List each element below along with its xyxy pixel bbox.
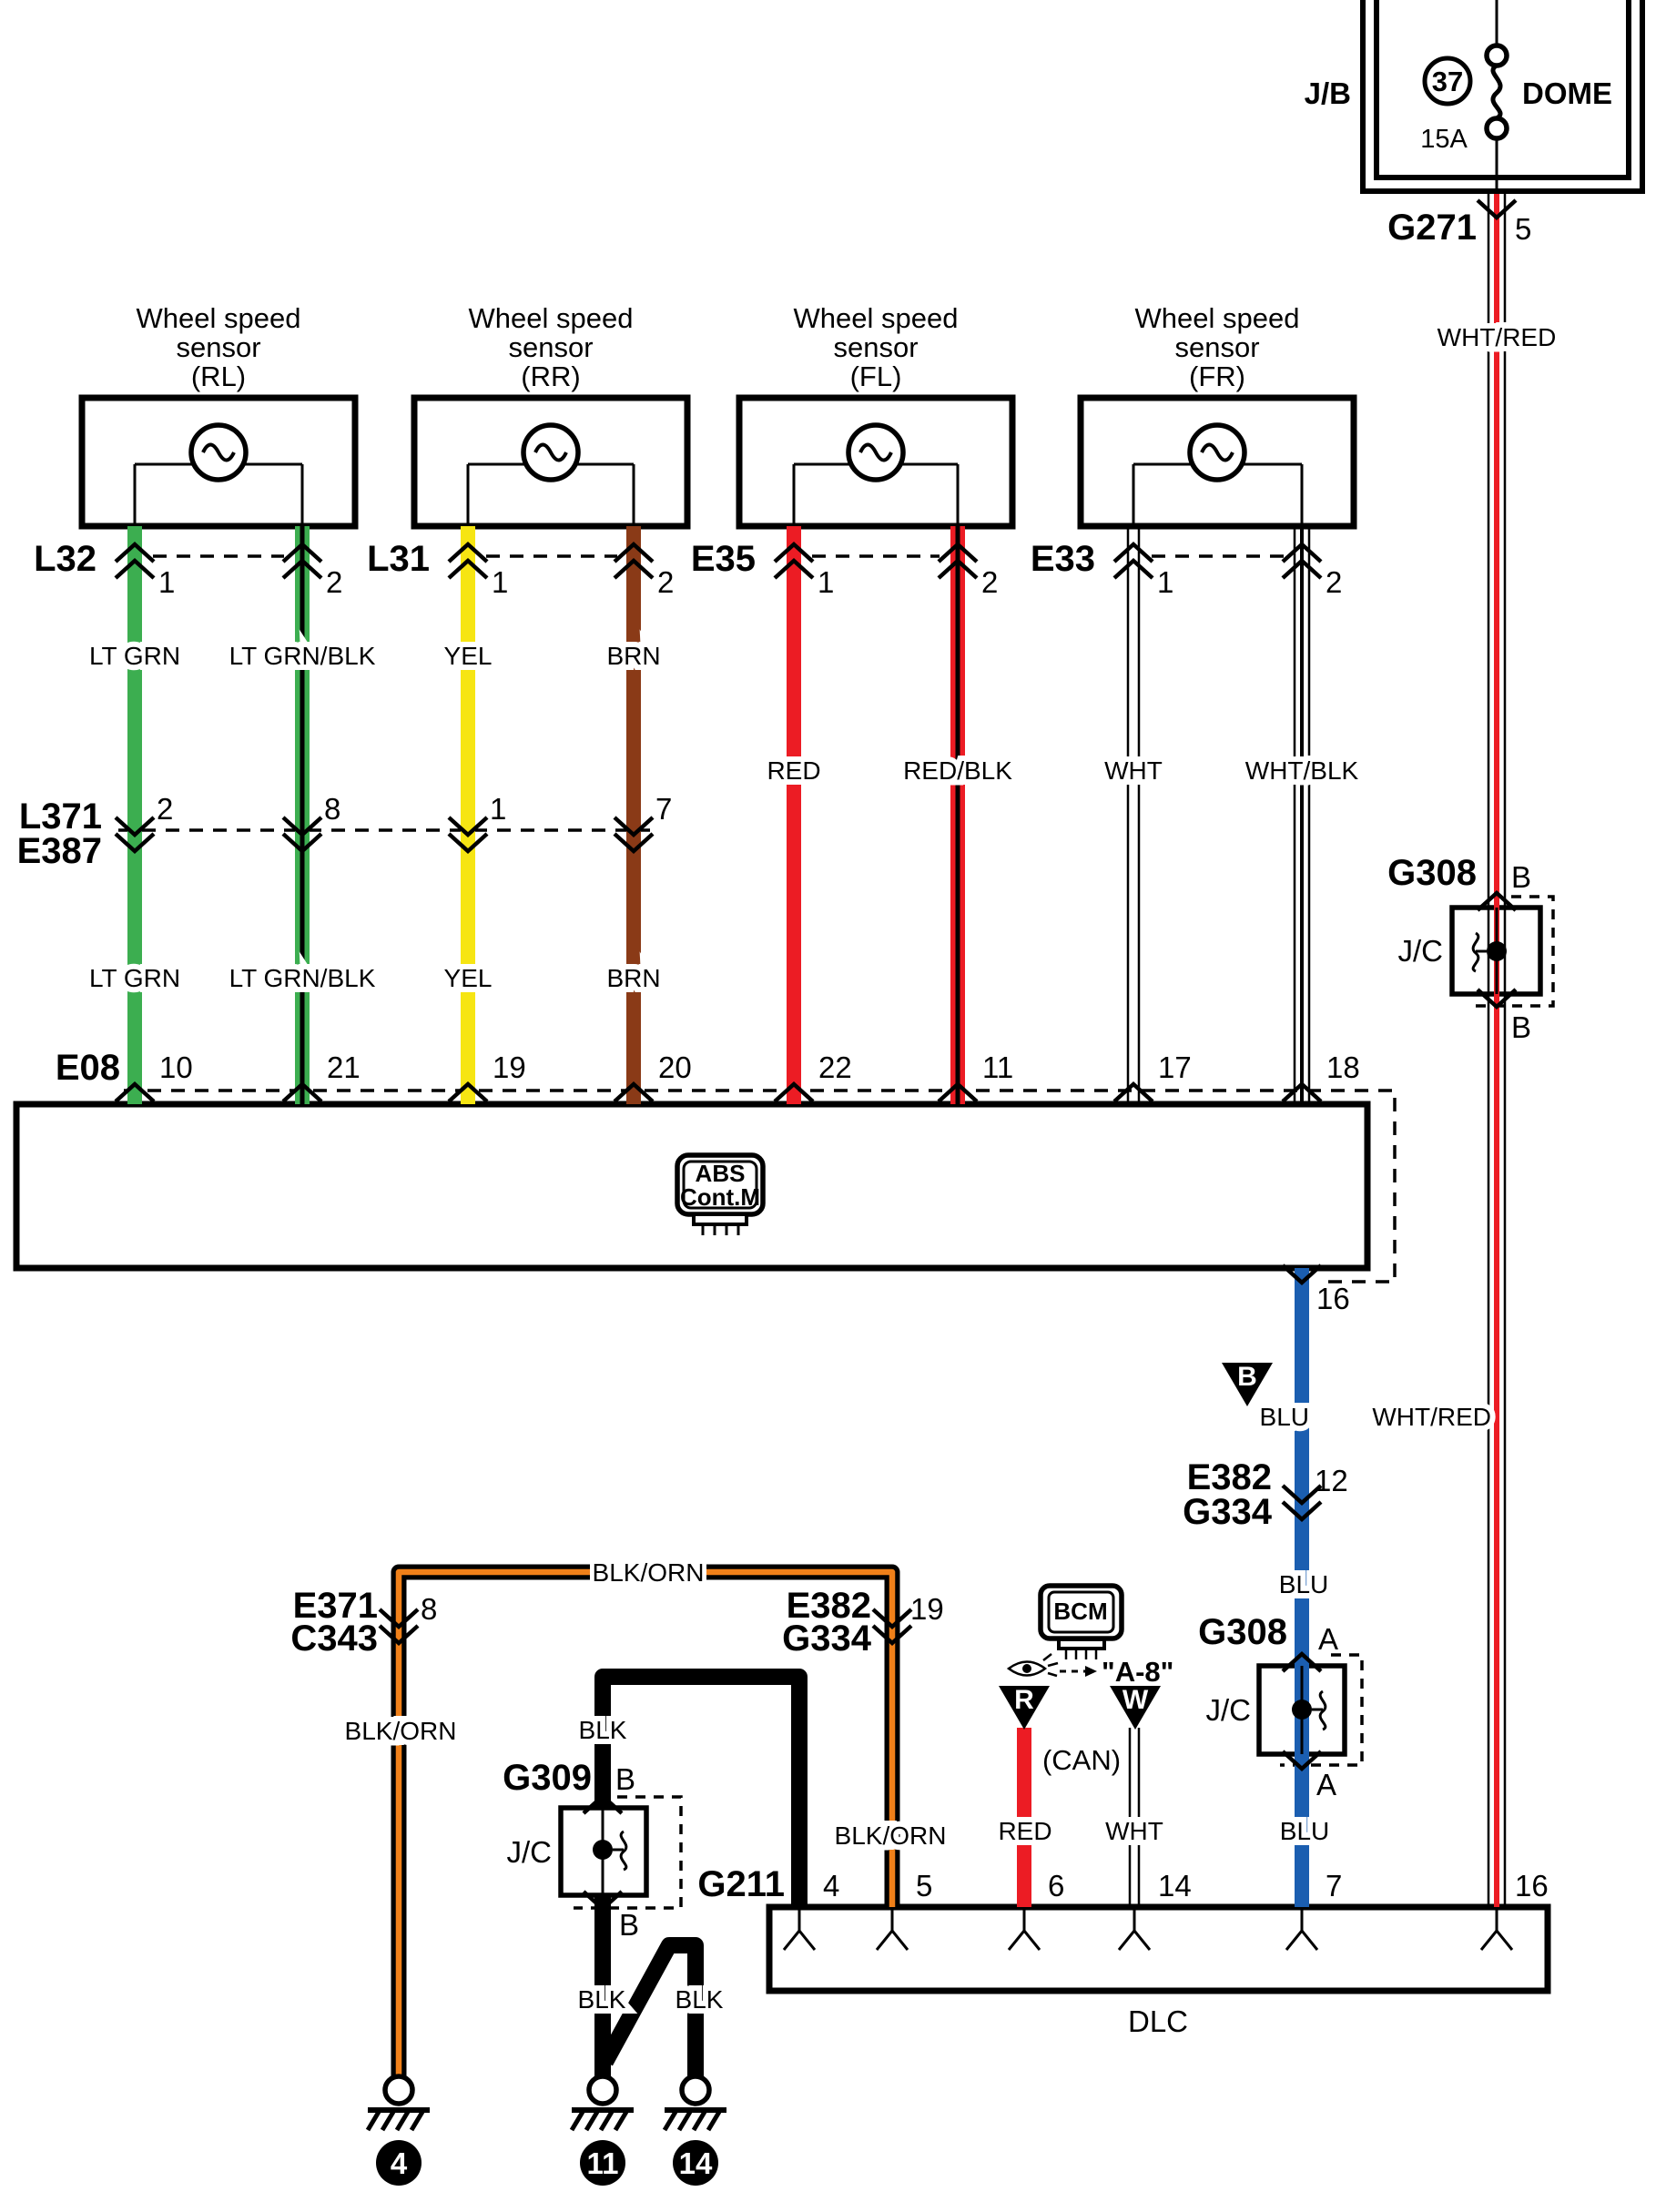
svg-text:(FR): (FR): [1189, 360, 1245, 392]
svg-text:YEL: YEL: [444, 964, 493, 992]
svg-text:(RL): (RL): [191, 360, 246, 392]
svg-text:J/C: J/C: [1206, 1693, 1252, 1727]
abs-wiring-diagram: J/B 37 15A DOME G271 5 WHT/RED Wheel spe…: [0, 0, 1666, 2212]
wire-label-blk-u: BLK: [579, 1716, 627, 1744]
ground-icon: [665, 2076, 726, 2130]
triangle-w-label: W: [1123, 1685, 1149, 1715]
svg-text:5: 5: [916, 1869, 932, 1903]
fuse-icon: [1487, 0, 1507, 194]
connector-e35: E35: [691, 539, 756, 579]
svg-text:A: A: [1318, 1622, 1338, 1656]
svg-text:1: 1: [492, 565, 508, 599]
wheel-speed-sensor-fl-box: [739, 398, 1012, 526]
fuse-name: DOME: [1522, 76, 1612, 110]
svg-text:7: 7: [1326, 1869, 1342, 1903]
svg-text:8: 8: [324, 792, 340, 826]
svg-text:B: B: [1511, 860, 1531, 894]
svg-text:2: 2: [657, 565, 674, 599]
eye-icon: [1009, 1654, 1058, 1676]
svg-text:LT GRN/BLK: LT GRN/BLK: [229, 642, 376, 670]
svg-text:WHT: WHT: [1104, 756, 1163, 785]
wire-label-wht: WHT: [1105, 1817, 1163, 1845]
wheel-speed-sensor-fr-box: [1081, 398, 1354, 526]
triangle-b-label: B: [1237, 1362, 1257, 1392]
dlc-label: DLC: [1128, 2004, 1188, 2038]
sensor-connector-labels: L32 1 2 L31 1 2 E35 1 2 E33 1 2: [34, 539, 1342, 599]
ground-number-14: 14: [679, 2146, 713, 2180]
svg-text:18: 18: [1326, 1050, 1360, 1084]
ground-icon: [368, 2076, 430, 2130]
svg-text:Wheel speed: Wheel speed: [794, 302, 959, 334]
svg-text:16: 16: [1515, 1869, 1549, 1903]
svg-text:2: 2: [326, 565, 342, 599]
svg-text:sensor: sensor: [176, 331, 260, 363]
wire-label-wht-red-2: WHT/RED: [1372, 1403, 1491, 1431]
wire-label-blk-orn-right: BLK/ORN: [835, 1821, 947, 1850]
wire-label-blu-2: BLU: [1279, 1570, 1328, 1598]
svg-text:(FL): (FL): [850, 360, 902, 392]
wheel-speed-sensor-rl-box: [82, 398, 355, 526]
svg-text:21: 21: [327, 1050, 361, 1084]
wire-label-blk-orn-left: BLK/ORN: [345, 1717, 457, 1745]
ground-icon: [572, 2076, 634, 2130]
bcm-label: BCM: [1053, 1598, 1107, 1625]
can-label: (CAN): [1042, 1744, 1121, 1776]
svg-text:7: 7: [655, 792, 672, 826]
triangle-r-label: R: [1014, 1685, 1034, 1715]
connector-e382-g334-blkorn: E382 G334 19: [782, 1586, 944, 1659]
svg-text:B: B: [1511, 1010, 1531, 1044]
svg-text:BRN: BRN: [606, 642, 660, 670]
reference-arrow-icon: [1060, 1666, 1097, 1677]
wire-label-blk-14: BLK: [676, 1985, 724, 2014]
svg-text:sensor: sensor: [833, 331, 918, 363]
wire-color-labels: LT GRN LT GRN/BLK YEL BRN RED RED/BLK WH…: [89, 642, 1359, 992]
connector-l31: L31: [367, 539, 430, 579]
svg-text:Wheel speed: Wheel speed: [137, 302, 301, 334]
svg-text:2: 2: [981, 565, 998, 599]
svg-text:10: 10: [159, 1050, 193, 1084]
svg-text:G211: G211: [697, 1864, 785, 1904]
svg-text:A: A: [1316, 1768, 1336, 1801]
svg-text:LT GRN: LT GRN: [89, 964, 180, 992]
fuse-number: 37: [1432, 66, 1463, 97]
ground-number-11: 11: [587, 2146, 619, 2180]
svg-text:C343: C343: [290, 1618, 378, 1659]
connector-l32: L32: [34, 539, 97, 579]
wire-label-red: RED: [998, 1817, 1051, 1845]
svg-text:(RR): (RR): [521, 360, 580, 392]
svg-text:19: 19: [910, 1592, 944, 1626]
abs-label-2: Cont.M: [680, 1183, 760, 1211]
svg-text:G308: G308: [1387, 853, 1477, 893]
svg-text:G334: G334: [1183, 1492, 1273, 1532]
wire-label-blu-1: BLU: [1260, 1403, 1309, 1431]
svg-text:sensor: sensor: [508, 331, 593, 363]
svg-text:G308: G308: [1198, 1612, 1287, 1652]
svg-text:E08: E08: [56, 1048, 120, 1088]
svg-text:E387: E387: [17, 831, 102, 871]
dlc-box: [769, 1907, 1548, 1991]
connector-e382-g334-blu: E382 G334 12: [1183, 1457, 1348, 1532]
bcm-reference: "A-8": [1102, 1656, 1173, 1688]
svg-text:19: 19: [493, 1050, 526, 1084]
wheel-speed-sensor-rr-box: [414, 398, 687, 526]
wire-label-wht-red: WHT/RED: [1437, 323, 1557, 351]
svg-text:J/C: J/C: [1398, 934, 1444, 968]
svg-text:2: 2: [157, 792, 173, 826]
svg-text:RED: RED: [767, 756, 820, 785]
svg-text:RED/BLK: RED/BLK: [903, 756, 1012, 785]
svg-text:Wheel speed: Wheel speed: [469, 302, 634, 334]
svg-text:11: 11: [982, 1050, 1013, 1084]
svg-text:BRN: BRN: [606, 964, 660, 992]
svg-text:1: 1: [1157, 565, 1173, 599]
svg-text:1: 1: [818, 565, 834, 599]
svg-text:17: 17: [1158, 1050, 1192, 1084]
wire-label-blk-orn-top: BLK/ORN: [593, 1558, 705, 1587]
wire-wht: [1128, 526, 1139, 1104]
svg-text:12: 12: [1315, 1464, 1348, 1497]
svg-text:LT GRN/BLK: LT GRN/BLK: [229, 964, 376, 992]
wiring-diagram-page: J/B 37 15A DOME G271 5 WHT/RED Wheel spe…: [0, 0, 1666, 2212]
svg-text:LT GRN: LT GRN: [89, 642, 180, 670]
svg-text:14: 14: [1158, 1869, 1192, 1903]
connector-g271: G271: [1387, 208, 1477, 248]
wire-label-blk-11: BLK: [578, 1985, 626, 2014]
svg-text:G309: G309: [503, 1758, 592, 1798]
svg-text:8: 8: [421, 1592, 437, 1626]
connector-e33: E33: [1031, 539, 1095, 579]
svg-text:sensor: sensor: [1174, 331, 1259, 363]
svg-text:Wheel speed: Wheel speed: [1135, 302, 1300, 334]
svg-text:J/C: J/C: [507, 1835, 553, 1869]
svg-text:G334: G334: [782, 1618, 872, 1659]
svg-text:B: B: [619, 1908, 639, 1942]
svg-text:WHT/BLK: WHT/BLK: [1245, 756, 1359, 785]
jb-label: J/B: [1305, 76, 1351, 110]
svg-text:22: 22: [818, 1050, 852, 1084]
wire-label-blu-3: BLU: [1280, 1817, 1329, 1845]
svg-text:20: 20: [658, 1050, 692, 1084]
svg-text:4: 4: [823, 1869, 839, 1903]
sensor-titles: Wheel speed sensor (RL) Wheel speed sens…: [137, 302, 1300, 392]
svg-text:1: 1: [490, 792, 506, 826]
connector-e371-c343: E371 C343 8: [290, 1586, 437, 1659]
e08-pin16: 16: [1316, 1282, 1350, 1315]
g271-pin: 5: [1515, 212, 1531, 246]
svg-text:2: 2: [1326, 565, 1342, 599]
fuse-amps: 15A: [1420, 125, 1468, 154]
svg-text:YEL: YEL: [444, 642, 493, 670]
svg-text:6: 6: [1048, 1869, 1064, 1903]
svg-text:B: B: [615, 1762, 635, 1796]
ground-number-4: 4: [391, 2146, 408, 2180]
svg-text:1: 1: [158, 565, 175, 599]
